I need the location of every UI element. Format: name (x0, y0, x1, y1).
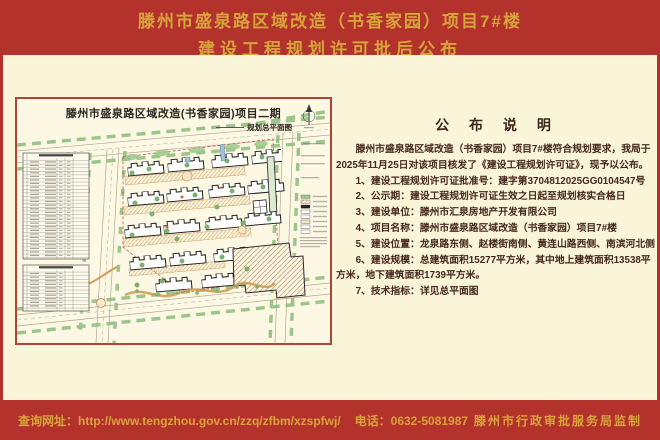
site-plan-drawing (17, 99, 330, 343)
subtitle-dash-line (216, 127, 244, 128)
site-plan-subtitle-label: 规划总平面图 (247, 122, 292, 133)
public-building (233, 243, 305, 298)
footer-contact: 查询网址：http://www.tengzhou.gov.cn/zzq/zfbm… (18, 412, 468, 429)
announcement-poster: { "header": { "title_line1": "滕州市盛泉路区域改造… (0, 0, 660, 440)
indicator-table-1 (23, 153, 89, 259)
footer-band: 查询网址：http://www.tengzhou.gov.cn/zzq/zfbm… (0, 400, 660, 440)
notice-intro: 滕州市盛泉路区域改造（书香家园）项目7#楼符合规划要求，我局于2025年11月2… (336, 142, 658, 174)
notice-item-2: 2、公示期：建设工程规划许可证生效之日起至规划核实合格日 (336, 189, 658, 205)
indicator-table-2 (23, 265, 89, 311)
site-plan-title: 滕州市盛泉路区域改造(书香家园)项目二期 (17, 105, 330, 121)
phone-number: 电话：0632-5081987 (355, 412, 468, 429)
notice-section: 公 布 说 明 滕州市盛泉路区域改造（书香家园）项目7#楼符合规划要求，我局于2… (336, 115, 658, 300)
notice-item-3: 3、建设单位：滕州市汇泉房地产开发有限公司 (336, 205, 658, 221)
content-area: 滕州市盛泉路区域改造(书香家园)项目二期 规划总平面图 (3, 55, 657, 400)
plan-legend (300, 143, 327, 247)
notice-item-7: 7、技术指标：详见总平面图 (336, 284, 658, 300)
notice-item-4: 4、项目名称：滕州市盛泉路区域改造（书香家园）项目7#楼 (336, 221, 658, 237)
query-url: 查询网址：http://www.tengzhou.gov.cn/zzq/zfbm… (18, 412, 341, 429)
site-plan-subtitle: 规划总平面图 (216, 122, 292, 133)
notice-item-6: 6、建设规模：总建筑面积15277平方米，其中地上建筑面积13538平方米，地下… (336, 253, 658, 285)
page-title-line1: 滕州市盛泉路区域改造（书香家园）项目7#楼 (0, 0, 660, 32)
notice-title: 公 布 说 明 (336, 115, 658, 135)
site-plan-panel: 滕州市盛泉路区域改造(书香家园)项目二期 规划总平面图 (15, 97, 332, 345)
notice-item-5: 5、建设位置：龙泉路东侧、赵楼街南侧、黄连山路西侧、南滨河北侧 (336, 237, 658, 253)
notice-item-1: 1、建设工程规划许可证批准号：建字第3704812025GG0104547号 (336, 174, 658, 190)
title-band: 滕州市盛泉路区域改造（书香家园）项目7#楼 建设工程规划许可批后公布 (0, 0, 660, 55)
producer-label: 滕州市行政审批服务局监制 (474, 412, 642, 429)
